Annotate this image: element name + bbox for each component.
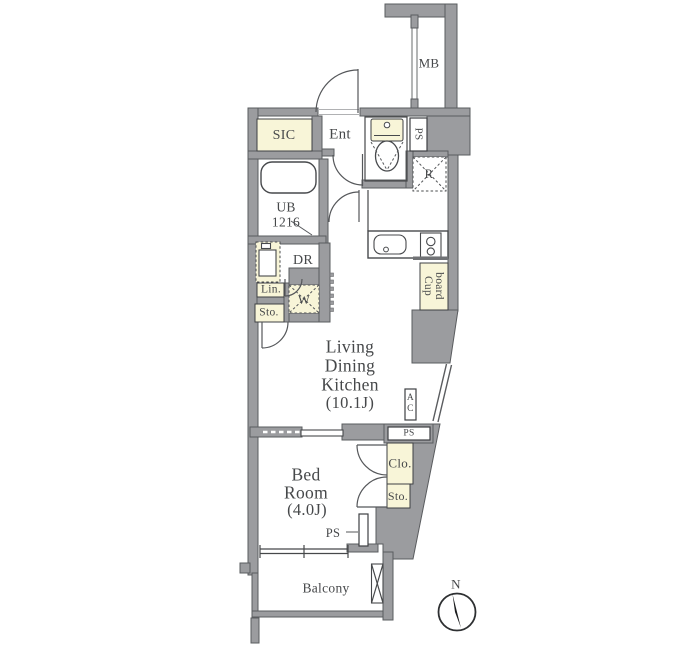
walls: [240, 4, 470, 643]
washbasin-bowl: [259, 250, 276, 276]
hall-door-arc: [333, 155, 363, 185]
wall: [448, 155, 458, 311]
label-bed-line3: (4.0J): [287, 502, 327, 519]
label-lin: Lin.: [261, 284, 281, 296]
pipe-space-bottom-box: [359, 514, 368, 546]
label-refrigerator: R: [425, 168, 434, 181]
label-clo: Clo.: [388, 457, 411, 470]
closet-door-arc: [357, 445, 387, 475]
balcony-partition: [372, 564, 384, 603]
label-ac-line1: A: [407, 394, 414, 404]
sliding-door-panel: [301, 430, 343, 436]
label-ldk-line1: Living: [326, 338, 374, 356]
label-ub-line1: UB: [276, 200, 295, 214]
label-sto-left: Sto.: [259, 307, 278, 319]
label-ps-top: PS: [413, 128, 424, 141]
label-sto-right: Sto.: [388, 490, 408, 502]
label-ac: A C: [407, 394, 414, 414]
wall: [248, 108, 258, 575]
wall: [289, 268, 319, 285]
wall: [342, 424, 386, 440]
sink-drain: [384, 247, 389, 252]
mb-thin-wall: [412, 15, 417, 112]
balcony-wall: [251, 618, 259, 643]
bathtub: [261, 162, 316, 193]
wall: [257, 297, 284, 304]
label-ps-bottom: PS: [326, 527, 341, 540]
label-ac-line2: C: [407, 405, 414, 415]
kitchen-sink: [374, 235, 406, 254]
wall: [360, 108, 470, 116]
wall: [319, 159, 328, 243]
wall: [250, 427, 302, 437]
wall: [248, 151, 322, 159]
label-ent: Ent: [329, 128, 351, 143]
compass: [439, 594, 476, 631]
label-dr: DR: [293, 254, 313, 268]
balcony-wall: [383, 552, 393, 620]
label-ps-middle: PS: [403, 429, 414, 439]
wall: [445, 4, 457, 113]
wall: [411, 15, 418, 28]
balcony-wall: [252, 611, 392, 617]
label-washer: W: [298, 294, 310, 307]
washbasin: [256, 242, 280, 282]
storage-door-arc: [262, 322, 288, 348]
wall: [319, 243, 330, 322]
label-sic: SIC: [273, 129, 296, 143]
label-ldk-line2: Dining: [325, 357, 375, 375]
label-balcony: Balcony: [302, 581, 349, 595]
toilet-fixture: [371, 119, 403, 171]
label-ldk-line4: (10.1J): [326, 395, 374, 412]
floorplan-geometry: [0, 0, 676, 651]
corridor-door-arc: [329, 192, 359, 222]
wall-slant-upper: [412, 310, 458, 363]
closet-door-arc: [357, 477, 387, 507]
label-cupboard-line1: Cup: [421, 276, 433, 296]
bedroom-window: [260, 545, 348, 558]
wall: [240, 563, 250, 573]
floorplan-canvas: MB PS SIC Ent R UB 1216 DR Lin. W Sto. C…: [0, 0, 676, 651]
label-mb: MB: [419, 57, 440, 70]
label-ldk-line3: Kitchen: [321, 376, 379, 394]
wall: [427, 116, 470, 155]
label-bed-line1: Bed: [291, 466, 320, 484]
label-cupboard-line2: board: [432, 272, 444, 300]
wall: [322, 149, 334, 156]
entrance-door-arc: [316, 70, 358, 112]
washbasin-faucet: [262, 244, 271, 249]
stove-burner: [427, 237, 435, 245]
stove-burner: [427, 248, 434, 255]
label-ub-line2: 1216: [272, 215, 300, 229]
wall-ticks: [330, 273, 334, 312]
label-compass-north: N: [451, 578, 461, 591]
toilet-button: [384, 122, 390, 128]
counter-edge: [413, 257, 448, 261]
